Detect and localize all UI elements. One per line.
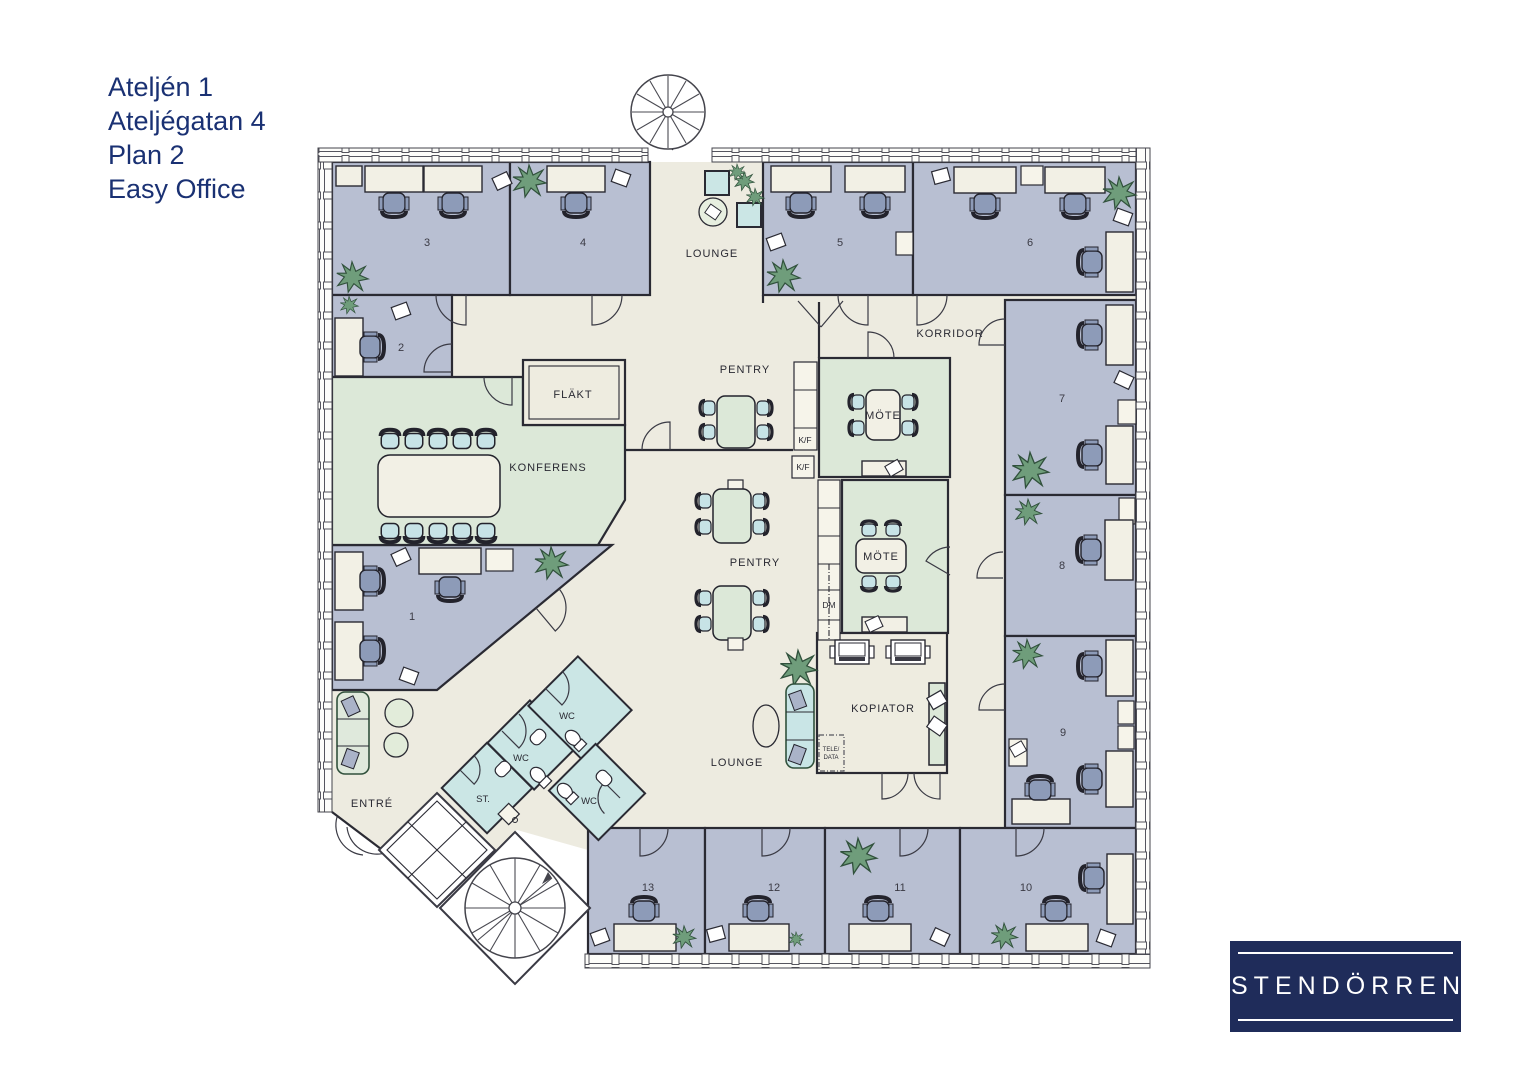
office-chair-icon — [860, 193, 890, 217]
office-chair-icon — [1080, 863, 1104, 893]
office-chair-icon — [561, 193, 591, 217]
desk — [1012, 799, 1070, 824]
tele-data-label-2: DATA — [823, 755, 838, 761]
office-chair-icon — [360, 566, 384, 596]
side-table — [705, 171, 729, 195]
room-7-label: 7 — [1059, 393, 1065, 405]
room-9-label: 9 — [1060, 727, 1066, 739]
office-chair-icon — [970, 194, 1000, 218]
kf-lower-label: K/F — [796, 462, 809, 472]
desk — [335, 622, 363, 680]
office-chair-icon — [1025, 776, 1055, 800]
desk — [614, 924, 676, 951]
window-band-left — [318, 162, 332, 812]
desk — [547, 166, 605, 192]
storage-box — [486, 549, 513, 571]
desk — [419, 548, 481, 574]
side-table — [737, 203, 761, 227]
office-chair-icon — [1078, 764, 1102, 794]
floor-plan-drawing: 3 4 5 6 2 7 8 9 1 13 12 11 10 LOUNGE KOR… — [0, 0, 1529, 1080]
oval-table — [753, 705, 779, 747]
desk — [1106, 232, 1133, 292]
korridor-label: KORRIDOR — [916, 328, 983, 340]
room-12-label: 12 — [768, 882, 780, 894]
stendorren-logo-text: STENDÖRREN — [1231, 972, 1466, 1001]
desk — [1107, 854, 1133, 924]
office-chair-icon — [379, 193, 409, 217]
office-chair-icon — [435, 577, 465, 601]
desk — [1026, 924, 1088, 951]
wc-top-label: WC — [559, 711, 575, 722]
pentry-upper-label: PENTRY — [720, 364, 770, 376]
desk — [336, 166, 362, 186]
kf-upper-label: K/F — [798, 435, 811, 445]
wc-bottom-label: WC — [581, 796, 597, 807]
mote-upper-label: MÖTE — [865, 410, 901, 422]
wc-mid-label: WC — [513, 753, 529, 764]
room-11-label: 11 — [894, 882, 905, 894]
copier-icon — [830, 640, 874, 664]
desk — [1106, 640, 1133, 696]
desk — [365, 166, 423, 192]
window-band-bottom — [585, 954, 1150, 968]
storage-box — [1118, 701, 1134, 724]
desk — [954, 167, 1016, 193]
office-chair-icon — [360, 332, 384, 362]
desk — [845, 166, 905, 192]
room-13-label: 13 — [642, 882, 654, 894]
window-band-top-right — [712, 148, 1150, 162]
pentry-table — [713, 586, 751, 640]
room-10-label: 10 — [1020, 882, 1032, 894]
room-6-label: 6 — [1027, 237, 1033, 249]
storage-box — [1021, 166, 1043, 185]
dm-label: DM — [822, 600, 835, 610]
storage-box — [1118, 726, 1134, 749]
flakt-label: FLÄKT — [553, 389, 592, 401]
pentry-lower-label: PENTRY — [730, 557, 780, 569]
lounge-top-label: LOUNGE — [686, 248, 738, 260]
desk — [1045, 167, 1105, 193]
tele-data-label-1: TELE/ — [823, 747, 840, 753]
office-chair-icon — [743, 897, 773, 921]
desk — [1106, 751, 1133, 807]
kitchen-cabinets — [818, 480, 840, 640]
office-chair-icon — [1078, 320, 1102, 350]
st-label: ST. — [476, 794, 490, 805]
kopiator-label: KOPIATOR — [851, 703, 915, 715]
pentry-table — [717, 396, 755, 448]
desk — [1106, 305, 1133, 365]
round-table — [384, 733, 408, 757]
office-chair-icon — [629, 897, 659, 921]
desk — [1106, 426, 1133, 484]
room-2-label: 2 — [398, 342, 404, 354]
room-3-label: 3 — [424, 237, 430, 249]
office-chair-icon — [863, 897, 893, 921]
window-band-right — [1136, 148, 1150, 968]
window-band-top-left — [318, 148, 648, 162]
kf-cabinets — [792, 362, 817, 478]
desk — [335, 318, 363, 376]
office-chair-icon — [1060, 194, 1090, 218]
pentry-table — [713, 489, 751, 543]
desk — [424, 166, 482, 192]
desk — [849, 924, 911, 951]
desk — [729, 924, 789, 951]
mote-lower-label: MÖTE — [863, 551, 899, 563]
conference-table — [378, 455, 500, 517]
room-1-label: 1 — [409, 611, 415, 623]
storage-box — [728, 638, 743, 650]
spiral-staircase-top — [631, 75, 705, 149]
room-4-label: 4 — [580, 237, 586, 249]
desk — [335, 552, 363, 610]
floorplan-page: Ateljén 1 Ateljégatan 4 Plan 2 Easy Offi… — [0, 0, 1529, 1080]
lounge-bottom-label: LOUNGE — [711, 757, 763, 769]
room-5-label: 5 — [837, 237, 843, 249]
room-8-label: 8 — [1059, 560, 1065, 572]
storage-box — [1118, 400, 1136, 424]
office-chair-icon — [1077, 535, 1101, 565]
office-chair-icon — [438, 193, 468, 217]
office-chair-icon — [1078, 440, 1102, 470]
copier-icon — [886, 640, 930, 664]
office-chair-icon — [1041, 897, 1071, 921]
desk — [1105, 520, 1133, 580]
stendorren-logo-frame: STENDÖRREN — [1238, 952, 1453, 1021]
storage-box — [896, 232, 913, 255]
office-chair-icon — [786, 193, 816, 217]
office-chair-icon — [1078, 651, 1102, 681]
round-table — [385, 699, 413, 727]
office-chair-icon — [360, 636, 384, 666]
entre-label: ENTRÉ — [351, 797, 393, 810]
konferens-furniture — [378, 430, 500, 543]
stendorren-logo: STENDÖRREN — [1230, 941, 1461, 1032]
konferens-label: KONFERENS — [509, 462, 586, 474]
desk — [771, 166, 831, 192]
office-chair-icon — [1078, 247, 1102, 277]
